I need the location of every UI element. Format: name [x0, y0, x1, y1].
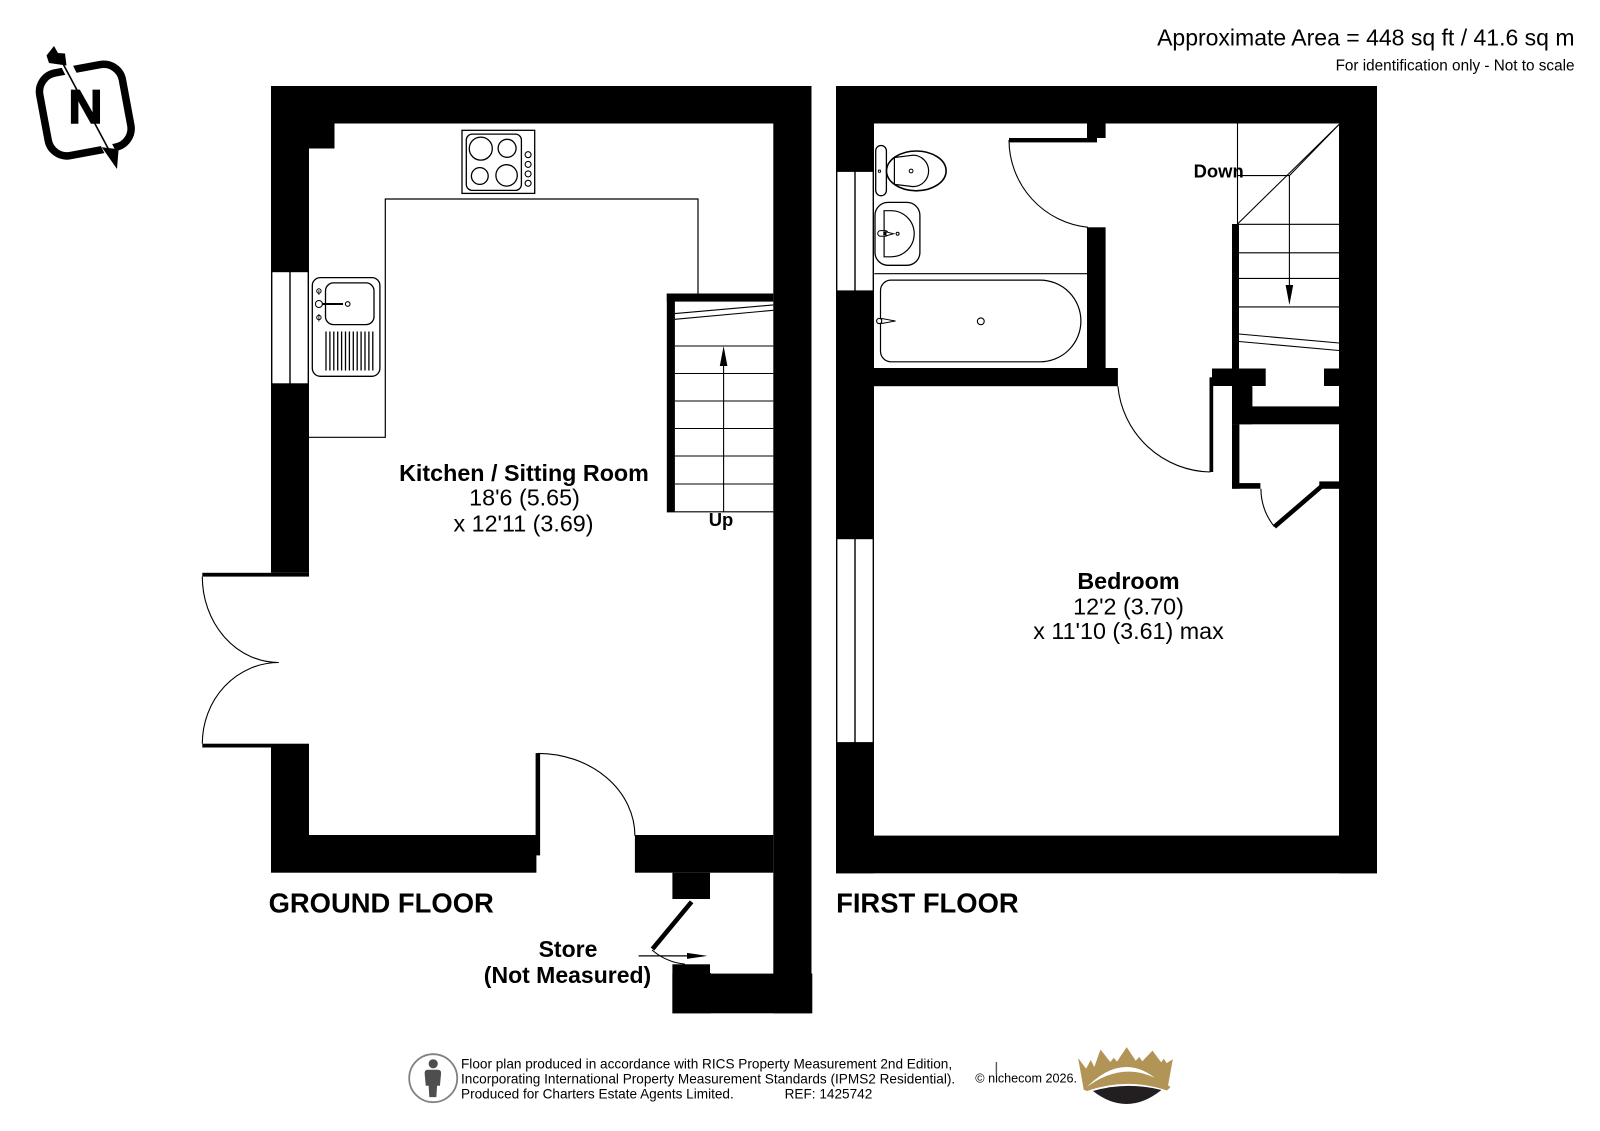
svg-text:Approximate Area = 448 sq ft /: Approximate Area = 448 sq ft / 41.6 sq m — [1157, 24, 1574, 50]
svg-text:GROUND FLOOR: GROUND FLOOR — [269, 888, 494, 919]
svg-text:Store: Store — [539, 936, 598, 962]
svg-text:Produced for Charters Estate A: Produced for Charters Estate Agents Limi… — [461, 1087, 734, 1102]
svg-text:Down: Down — [1194, 161, 1244, 182]
svg-text:REF: 1425742: REF: 1425742 — [785, 1087, 873, 1102]
svg-text:x 11'10 (3.61) max: x 11'10 (3.61) max — [1033, 618, 1224, 644]
svg-text:(Not Measured): (Not Measured) — [484, 962, 651, 988]
svg-text:FIRST FLOOR: FIRST FLOOR — [836, 888, 1019, 919]
svg-text:Bedroom: Bedroom — [1077, 568, 1179, 594]
svg-text:For identification only - Not: For identification only - Not to scale — [1336, 57, 1575, 74]
svg-text:© nichecom 2026.: © nichecom 2026. — [975, 1071, 1077, 1085]
svg-text:18'6 (5.65): 18'6 (5.65) — [469, 484, 580, 510]
svg-text:Kitchen / Sitting Room: Kitchen / Sitting Room — [399, 460, 649, 486]
svg-text:x 12'11 (3.69): x 12'11 (3.69) — [454, 511, 594, 537]
svg-text:Floor plan produced in accorda: Floor plan produced in accordance with R… — [461, 1057, 952, 1072]
svg-text:12'2 (3.70): 12'2 (3.70) — [1073, 594, 1184, 620]
svg-text:Incorporating International Pr: Incorporating International Property Mea… — [461, 1071, 955, 1086]
svg-text:Up: Up — [709, 509, 734, 530]
